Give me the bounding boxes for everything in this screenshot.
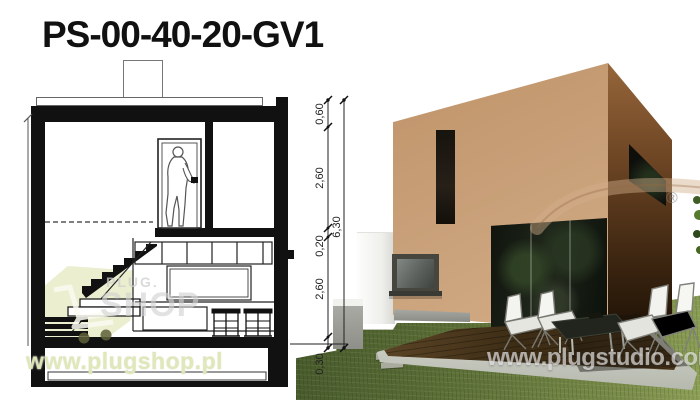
vertical-slit-window: [436, 130, 455, 224]
plugstudio-url-watermark: www.plugstudio.com: [487, 344, 700, 372]
chimney: [123, 60, 163, 98]
floor-slab-ground: [31, 337, 288, 348]
door-with-person: [158, 139, 201, 228]
architectural-sheet: 0,60 2,60 0,20 2,60 0,30 6,30 PS-00-40-2…: [0, 0, 700, 400]
dim-label-260-lower: 2,60: [314, 278, 326, 299]
roof-parapet: [36, 97, 263, 106]
foundation-base: [31, 381, 288, 387]
left-wall: [31, 122, 45, 348]
registered-mark: ®: [666, 190, 678, 208]
right-wall: [274, 122, 288, 348]
small-window-glass: [397, 259, 434, 288]
plugshop-logo-text-main: SHOP: [100, 286, 200, 325]
page-title: PS-00-40-20-GV1: [42, 14, 323, 56]
garden-wall-low: [333, 299, 363, 349]
dim-label-260-upper: 2,60: [314, 167, 326, 188]
plugshop-url-watermark: www.plugshop.pl: [26, 348, 223, 375]
interior-wall: [205, 122, 213, 228]
dim-label-060: 0,60: [314, 103, 326, 124]
dim-label-total-630: 6,30: [331, 216, 343, 237]
dim-label-030: 0,30: [314, 353, 326, 374]
bush-icon: [693, 196, 700, 254]
small-window-shadow: [389, 296, 442, 299]
floor-slab-mid: [155, 228, 274, 237]
roof-slab: [31, 106, 288, 122]
dim-label-020: 0,20: [314, 235, 326, 256]
foundation-right: [268, 348, 288, 383]
wall-nub: [288, 250, 294, 259]
